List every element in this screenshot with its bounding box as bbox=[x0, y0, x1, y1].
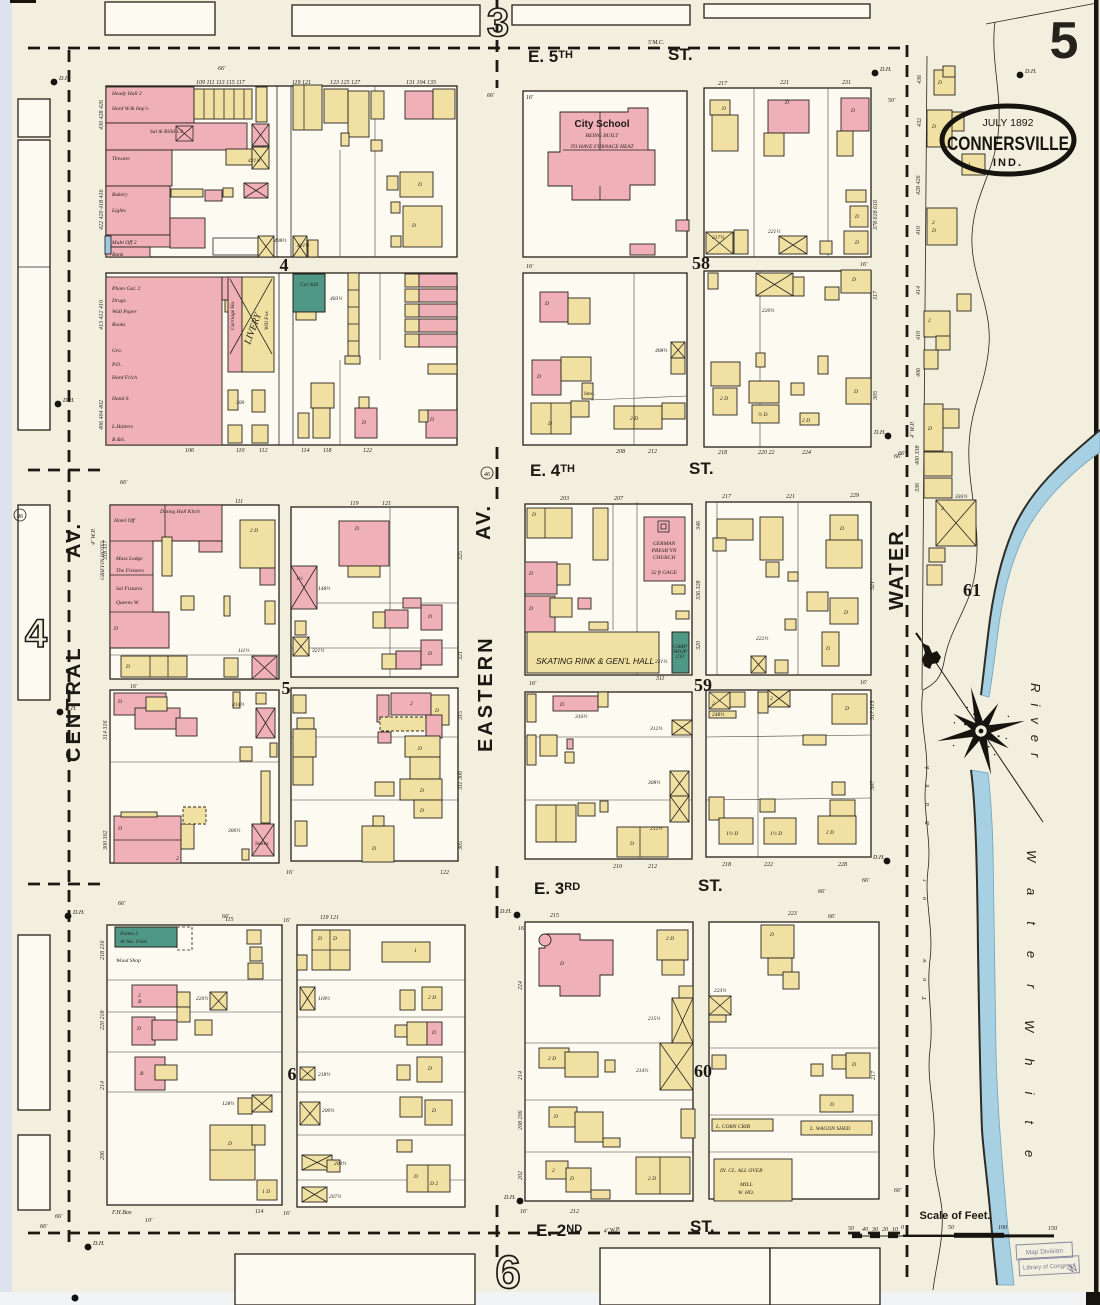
svg-text:311 309: 311 309 bbox=[458, 771, 464, 791]
svg-text:321: 321 bbox=[458, 651, 464, 661]
svg-text:Smo.: Smo. bbox=[584, 391, 595, 397]
svg-text:430 428 426: 430 428 426 bbox=[98, 100, 105, 130]
svg-text:150: 150 bbox=[1048, 1226, 1057, 1232]
svg-text:208 206: 208 206 bbox=[518, 1111, 524, 1131]
svg-text:D.H.: D.H. bbox=[503, 1195, 516, 1201]
svg-text:D: D bbox=[850, 108, 855, 114]
svg-text:ST.: ST. bbox=[698, 876, 723, 895]
svg-text:421½: 421½ bbox=[297, 242, 309, 249]
svg-text:2 D: 2 D bbox=[802, 418, 810, 424]
svg-text:Paints 2: Paints 2 bbox=[119, 931, 138, 937]
svg-text:312½: 312½ bbox=[649, 725, 662, 732]
svg-text:2: 2 bbox=[932, 220, 935, 226]
svg-text:217: 217 bbox=[871, 1070, 877, 1080]
svg-text:66′: 66′ bbox=[818, 889, 826, 895]
svg-text:320: 320 bbox=[696, 641, 702, 651]
svg-text:3: 3 bbox=[487, 1, 509, 45]
svg-text:207½: 207½ bbox=[329, 1193, 341, 1200]
svg-text:16′: 16′ bbox=[283, 1211, 291, 1217]
svg-text:ST.: ST. bbox=[690, 1217, 715, 1236]
svg-text:D: D bbox=[361, 420, 366, 426]
svg-text:4′ʿW.P.: 4′ʿW.P. bbox=[909, 421, 916, 438]
svg-text:Hard W.& Impʼs: Hard W.& Impʼs bbox=[111, 106, 148, 112]
svg-text:CHURCH: CHURCH bbox=[653, 555, 677, 561]
svg-text:207: 207 bbox=[614, 496, 624, 502]
svg-text:406: 406 bbox=[915, 368, 922, 377]
svg-text:Will Fox: Will Fox bbox=[264, 311, 270, 330]
svg-text:Scale of Feet.: Scale of Feet. bbox=[920, 1210, 991, 1222]
svg-text:D: D bbox=[317, 936, 322, 942]
svg-text:Heady Hall 2: Heady Hall 2 bbox=[111, 91, 142, 97]
svg-text:222½: 222½ bbox=[756, 635, 768, 642]
svg-text:6: 6 bbox=[495, 1246, 521, 1298]
svg-text:The Fixtures: The Fixtures bbox=[116, 568, 144, 574]
svg-text:D: D bbox=[411, 223, 416, 229]
svg-text:D: D bbox=[354, 526, 359, 532]
svg-text:EASTERN: EASTERN bbox=[475, 635, 497, 752]
svg-text:Hotel Off: Hotel Off bbox=[113, 517, 136, 524]
svg-text:114: 114 bbox=[301, 447, 310, 454]
svg-text:50′: 50′ bbox=[888, 98, 896, 104]
svg-text:PRESBʼYN: PRESBʼYN bbox=[651, 548, 677, 554]
svg-text:D: D bbox=[117, 826, 122, 832]
svg-text:325: 325 bbox=[458, 551, 464, 561]
svg-text:CO: CO bbox=[676, 654, 684, 660]
svg-text:122: 122 bbox=[440, 870, 449, 876]
svg-text:314½: 314½ bbox=[231, 701, 244, 708]
svg-text:Mass Lodge: Mass Lodge bbox=[115, 556, 143, 562]
svg-text:305: 305 bbox=[873, 391, 879, 401]
svg-text:422 420 418 416: 422 420 418 416 bbox=[98, 190, 105, 231]
svg-text:16′: 16′ bbox=[526, 264, 534, 270]
svg-text:111: 111 bbox=[235, 499, 243, 505]
svg-text:308½: 308½ bbox=[647, 779, 660, 786]
svg-text:220½: 220½ bbox=[196, 995, 208, 1002]
svg-text:317: 317 bbox=[873, 290, 879, 301]
svg-text:D: D bbox=[227, 1141, 232, 1147]
svg-text:200½: 200½ bbox=[322, 1107, 334, 1114]
svg-text:D: D bbox=[419, 808, 424, 814]
svg-text:D: D bbox=[547, 421, 552, 427]
svg-text:Wall Paper: Wall Paper bbox=[112, 309, 138, 315]
svg-text:D: D bbox=[528, 571, 533, 577]
svg-text:IN. CL. ALL OVER: IN. CL. ALL OVER bbox=[719, 1168, 763, 1174]
svg-text:D: D bbox=[629, 841, 634, 847]
svg-text:214: 214 bbox=[99, 1081, 106, 1090]
svg-text:Wood Shop: Wood Shop bbox=[116, 958, 141, 964]
svg-text:0: 0 bbox=[901, 1225, 904, 1231]
svg-text:D: D bbox=[559, 702, 564, 708]
svg-text:248½: 248½ bbox=[712, 711, 724, 718]
svg-text:W. HO.: W. HO. bbox=[738, 1190, 754, 1196]
svg-text:CENTRAL: CENTRAL bbox=[63, 645, 85, 762]
svg-text:112: 112 bbox=[259, 448, 268, 454]
svg-text:2 D: 2 D bbox=[666, 936, 674, 942]
svg-text:403½: 403½ bbox=[330, 295, 342, 302]
svg-text:10′: 10′ bbox=[145, 1218, 153, 1224]
svg-text:D: D bbox=[544, 301, 549, 307]
svg-text:4: 4 bbox=[280, 255, 289, 275]
svg-text:1 D: 1 D bbox=[262, 1189, 270, 1195]
svg-text:410: 410 bbox=[915, 331, 922, 340]
svg-text:D: D bbox=[721, 106, 726, 112]
svg-text:1½: 1½ bbox=[296, 575, 303, 582]
svg-text:2 D: 2 D bbox=[250, 528, 258, 534]
svg-text:300½: 300½ bbox=[227, 827, 240, 834]
svg-text:60: 60 bbox=[694, 1061, 712, 1081]
svg-text:123 125 127: 123 125 127 bbox=[330, 80, 361, 86]
svg-text:218: 218 bbox=[718, 450, 727, 456]
svg-text:318 317: 318 317 bbox=[103, 540, 109, 562]
svg-text:111½: 111½ bbox=[238, 647, 250, 654]
svg-text:White: White bbox=[1022, 1020, 1037, 1183]
svg-text:Bank: Bank bbox=[112, 252, 124, 258]
svg-text:D: D bbox=[117, 699, 122, 705]
svg-text:AV.: AV. bbox=[63, 522, 85, 558]
svg-text:212: 212 bbox=[570, 1209, 579, 1215]
svg-text:16′: 16′ bbox=[283, 918, 291, 924]
svg-text:16′: 16′ bbox=[860, 680, 868, 686]
svg-text:218: 218 bbox=[722, 862, 731, 868]
svg-text:Dining Hall Kitch: Dining Hall Kitch bbox=[159, 509, 200, 515]
svg-text:D: D bbox=[528, 606, 533, 612]
svg-text:408½: 408½ bbox=[274, 237, 286, 244]
svg-text:118: 118 bbox=[323, 448, 332, 454]
svg-text:58: 58 bbox=[692, 253, 710, 273]
svg-text:IND.: IND. bbox=[993, 157, 1023, 169]
svg-text:66′: 66′ bbox=[898, 451, 906, 457]
svg-text:D: D bbox=[829, 1102, 834, 1108]
svg-text:109 111 113 115 117: 109 111 113 115 117 bbox=[196, 80, 246, 86]
svg-text:336 328: 336 328 bbox=[696, 581, 702, 602]
svg-text:D: D bbox=[553, 1114, 558, 1120]
svg-text:221: 221 bbox=[786, 494, 795, 500]
svg-text:406 404 402: 406 404 402 bbox=[98, 400, 105, 430]
svg-text:6: 6 bbox=[288, 1064, 297, 1084]
svg-text:D.H.: D.H. bbox=[72, 910, 85, 916]
svg-text:Sal Fixtures: Sal Fixtures bbox=[116, 586, 143, 592]
svg-text:Multi Off 2: Multi Off 2 bbox=[111, 239, 137, 246]
svg-text:119: 119 bbox=[350, 501, 359, 507]
svg-text:217: 217 bbox=[722, 494, 732, 500]
svg-text:D: D bbox=[136, 1026, 141, 1032]
svg-text:316½: 316½ bbox=[574, 713, 587, 720]
svg-text:32 ft GAGE: 32 ft GAGE bbox=[650, 569, 678, 576]
svg-text:D: D bbox=[427, 651, 432, 657]
svg-text:315: 315 bbox=[458, 711, 464, 721]
svg-text:66′: 66′ bbox=[55, 1214, 63, 1220]
svg-text:2 D: 2 D bbox=[548, 1056, 556, 1062]
svg-text:D: D bbox=[931, 228, 936, 234]
svg-text:o r: o r bbox=[922, 872, 928, 900]
svg-text:378 618 616: 378 618 616 bbox=[873, 200, 879, 231]
svg-text:212: 212 bbox=[648, 864, 657, 870]
svg-text:D: D bbox=[417, 182, 422, 188]
svg-text:2: 2 bbox=[770, 696, 773, 702]
svg-text:Sal & Billdʼs 2: Sal & Billdʼs 2 bbox=[150, 129, 183, 135]
svg-text:D: D bbox=[937, 80, 942, 86]
svg-text:1½ D: 1½ D bbox=[770, 830, 782, 837]
svg-text:D.H.: D.H. bbox=[1024, 69, 1037, 75]
svg-text:119 121: 119 121 bbox=[292, 80, 311, 86]
svg-text:Carriage Ho.: Carriage Ho. bbox=[230, 300, 236, 330]
svg-text:4: 4 bbox=[25, 612, 48, 656]
svg-text:L. WAGON SHED: L. WAGON SHED bbox=[809, 1126, 850, 1132]
svg-text:203½: 203½ bbox=[334, 1160, 346, 1167]
svg-text:50: 50 bbox=[848, 1226, 854, 1232]
svg-text:224: 224 bbox=[517, 981, 524, 990]
svg-text:16′: 16′ bbox=[518, 926, 526, 932]
svg-text:D.H.: D.H. bbox=[499, 909, 512, 915]
svg-text:4′ʿW.P.: 4′ʿW.P. bbox=[90, 528, 97, 545]
svg-text:336½: 336½ bbox=[954, 493, 967, 500]
svg-text:D: D bbox=[125, 664, 130, 670]
svg-text:D: D bbox=[825, 646, 830, 652]
svg-text:D.H.: D.H. bbox=[873, 430, 886, 436]
svg-text:215½: 215½ bbox=[648, 1015, 660, 1022]
svg-text:122: 122 bbox=[363, 448, 372, 454]
svg-text:WATER: WATER bbox=[886, 529, 908, 610]
svg-text:D: D bbox=[419, 788, 424, 794]
svg-text:D: D bbox=[113, 626, 118, 632]
svg-text:346: 346 bbox=[695, 521, 702, 531]
svg-text:D: D bbox=[417, 746, 422, 752]
svg-text:D: D bbox=[844, 706, 849, 712]
svg-text:Cal Still: Cal Still bbox=[300, 282, 319, 288]
svg-text:1½ D: 1½ D bbox=[726, 830, 738, 837]
svg-text:2: 2 bbox=[712, 701, 715, 707]
svg-text:D: D bbox=[843, 610, 848, 616]
svg-text:224: 224 bbox=[802, 449, 811, 456]
svg-text:Water: Water bbox=[1024, 850, 1039, 1014]
svg-text:D: D bbox=[853, 389, 858, 395]
svg-text:408½: 408½ bbox=[655, 347, 667, 354]
svg-text:2: 2 bbox=[176, 856, 179, 862]
svg-text:228: 228 bbox=[838, 862, 847, 868]
svg-text:D: D bbox=[427, 614, 432, 620]
svg-text:Stores: Stores bbox=[255, 841, 269, 847]
svg-text:BEING BUILT: BEING BUILT bbox=[586, 133, 620, 139]
svg-text:215: 215 bbox=[550, 913, 559, 919]
svg-text:City School: City School bbox=[574, 119, 629, 130]
svg-text:D.H.: D.H. bbox=[64, 706, 77, 712]
svg-text:D: D bbox=[854, 240, 859, 246]
svg-text:229: 229 bbox=[850, 493, 859, 499]
svg-text:D: D bbox=[569, 1176, 574, 1182]
svg-text:222: 222 bbox=[764, 862, 773, 868]
svg-text:300 302: 300 302 bbox=[103, 831, 109, 852]
svg-text:D: D bbox=[851, 1062, 856, 1068]
svg-text:305: 305 bbox=[458, 841, 464, 851]
svg-text:D: D bbox=[536, 374, 541, 380]
svg-text:66′: 66′ bbox=[218, 66, 226, 72]
svg-text:D.H.: D.H. bbox=[58, 76, 71, 82]
svg-text:321: 321 bbox=[870, 581, 876, 591]
svg-text:Books: Books bbox=[112, 322, 125, 328]
svg-text:223: 223 bbox=[788, 911, 797, 917]
svg-text:220 218: 220 218 bbox=[100, 1011, 106, 1031]
svg-text:61: 61 bbox=[963, 580, 981, 600]
svg-text:16′: 16′ bbox=[529, 681, 537, 687]
svg-text:314 316: 314 316 bbox=[102, 721, 109, 742]
svg-text:1: 1 bbox=[414, 948, 417, 954]
svg-text:Drugs: Drugs bbox=[111, 298, 126, 304]
svg-text:428 426: 428 426 bbox=[915, 176, 922, 196]
svg-text:128½: 128½ bbox=[222, 1100, 234, 1107]
svg-text:311: 311 bbox=[655, 676, 665, 682]
svg-text:66′: 66′ bbox=[222, 914, 230, 920]
svg-text:2 D: 2 D bbox=[428, 995, 436, 1001]
svg-text:D: D bbox=[927, 426, 932, 432]
svg-text:D: D bbox=[431, 1108, 436, 1114]
svg-text:16′: 16′ bbox=[860, 262, 868, 268]
svg-text:2: 2 bbox=[552, 1168, 555, 1174]
svg-text:202: 202 bbox=[518, 1171, 524, 1180]
svg-text:66′: 66′ bbox=[487, 93, 495, 99]
svg-text:TO HAVE FURNACE HEAT: TO HAVE FURNACE HEAT bbox=[570, 144, 634, 150]
svg-text:217: 217 bbox=[718, 81, 728, 87]
svg-text:66′: 66′ bbox=[40, 1224, 48, 1230]
svg-text:Queens W.: Queens W. bbox=[116, 600, 139, 606]
svg-text:436: 436 bbox=[916, 75, 923, 84]
svg-text:218 216: 218 216 bbox=[100, 941, 106, 961]
svg-text:D.H.: D.H. bbox=[92, 1241, 105, 1247]
svg-text:D: D bbox=[784, 100, 789, 106]
svg-text:66′: 66′ bbox=[828, 914, 836, 920]
svg-text:GERMAN: GERMAN bbox=[653, 541, 676, 547]
svg-text:CONNERSVILLE: CONNERSVILLE bbox=[947, 134, 1069, 155]
svg-text:119 121: 119 121 bbox=[320, 915, 339, 921]
svg-text:B.&S.: B.&S. bbox=[112, 437, 125, 443]
svg-text:218½: 218½ bbox=[318, 1071, 330, 1078]
svg-text:16′: 16′ bbox=[286, 870, 294, 876]
svg-text:2 D: 2 D bbox=[826, 830, 834, 836]
svg-text:410: 410 bbox=[915, 226, 922, 235]
svg-text:221½: 221½ bbox=[768, 228, 780, 235]
svg-text:AV.: AV. bbox=[473, 504, 495, 540]
svg-text:50: 50 bbox=[948, 1225, 954, 1231]
svg-text:2: 2 bbox=[410, 701, 413, 707]
svg-text:121: 121 bbox=[382, 501, 391, 507]
svg-text:307: 307 bbox=[870, 780, 876, 791]
svg-text:66′: 66′ bbox=[120, 480, 128, 486]
svg-text:Tinware: Tinware bbox=[112, 156, 130, 162]
svg-text:214: 214 bbox=[517, 1071, 524, 1080]
svg-text:D.H.: D.H. bbox=[62, 398, 75, 404]
svg-text:Bakery: Bakery bbox=[112, 192, 128, 198]
svg-text:110: 110 bbox=[236, 448, 245, 454]
svg-text:D: D bbox=[931, 124, 936, 130]
svg-text:2 D: 2 D bbox=[630, 416, 638, 422]
svg-text:D: D bbox=[559, 961, 564, 967]
svg-text:30: 30 bbox=[871, 1227, 878, 1233]
svg-text:210: 210 bbox=[613, 864, 622, 870]
svg-text:317 315: 317 315 bbox=[870, 701, 876, 722]
svg-text:D: D bbox=[854, 214, 859, 220]
svg-text:214½: 214½ bbox=[636, 1067, 648, 1074]
svg-text:D: D bbox=[839, 526, 844, 532]
svg-text:148½: 148½ bbox=[318, 585, 330, 592]
svg-text:JULY 1892: JULY 1892 bbox=[983, 117, 1034, 129]
svg-text:100: 100 bbox=[998, 1225, 1007, 1231]
svg-text:2: 2 bbox=[941, 506, 944, 512]
svg-text:D: D bbox=[371, 846, 376, 852]
svg-text:D: D bbox=[413, 1174, 418, 1180]
svg-text:T o w: T o w bbox=[922, 952, 928, 1000]
svg-text:66′: 66′ bbox=[894, 1188, 902, 1194]
svg-text:223½: 223½ bbox=[714, 987, 726, 994]
svg-text:46: 46 bbox=[484, 471, 490, 478]
svg-text:321½: 321½ bbox=[311, 647, 324, 654]
svg-text:66′: 66′ bbox=[118, 901, 126, 907]
svg-text:D: D bbox=[531, 512, 536, 518]
svg-text:D: D bbox=[427, 1066, 432, 1072]
svg-text:300: 300 bbox=[235, 400, 245, 406]
svg-text:5: 5 bbox=[1050, 12, 1079, 70]
svg-text:ST.: ST. bbox=[689, 459, 714, 478]
svg-text:ST.: ST. bbox=[668, 45, 693, 64]
svg-text:421½: 421½ bbox=[248, 157, 260, 164]
svg-text:231: 231 bbox=[842, 80, 851, 86]
svg-text:16′: 16′ bbox=[526, 95, 534, 101]
svg-text:336: 336 bbox=[915, 483, 921, 493]
svg-text:SKATING RINK & GENʼL HALL: SKATING RINK & GENʼL HALL bbox=[536, 656, 655, 666]
svg-text:131 104 135: 131 104 135 bbox=[406, 79, 436, 86]
svg-text:D.H.: D.H. bbox=[872, 855, 885, 861]
svg-text:2 D: 2 D bbox=[648, 1176, 656, 1182]
svg-text:16′: 16′ bbox=[130, 684, 138, 690]
svg-text:432: 432 bbox=[916, 118, 923, 127]
svg-text:D: D bbox=[851, 277, 856, 283]
svg-text:F.H.Box: F.H.Box bbox=[111, 1210, 132, 1216]
svg-text:P.O.: P.O. bbox=[111, 362, 121, 368]
svg-text:212½: 212½ bbox=[650, 825, 662, 832]
svg-text:D.H.: D.H. bbox=[879, 67, 892, 73]
svg-text:220½: 220½ bbox=[762, 307, 774, 314]
svg-text:10: 10 bbox=[892, 1227, 898, 1233]
svg-text:D: D bbox=[769, 932, 774, 938]
svg-text:½ D: ½ D bbox=[758, 411, 768, 418]
svg-text:40: 40 bbox=[862, 1226, 868, 1233]
svg-text:D: D bbox=[431, 1030, 436, 1036]
svg-text:MILL: MILL bbox=[739, 1182, 753, 1188]
svg-text:114: 114 bbox=[255, 1208, 264, 1215]
svg-text:Lights: Lights bbox=[111, 208, 126, 214]
svg-text:118½: 118½ bbox=[318, 995, 330, 1002]
svg-text:221½: 221½ bbox=[655, 658, 667, 665]
svg-text:106: 106 bbox=[185, 448, 194, 454]
svg-text:5′M.C.: 5′M.C. bbox=[648, 40, 664, 46]
svg-text:66′: 66′ bbox=[862, 878, 870, 884]
svg-text:400 338: 400 338 bbox=[914, 446, 921, 466]
svg-text:At Sto. Fixts: At Sto. Fixts bbox=[119, 939, 147, 945]
svg-text:217½: 217½ bbox=[712, 234, 724, 241]
svg-text:D: D bbox=[429, 417, 434, 423]
svg-text:221: 221 bbox=[780, 80, 789, 86]
svg-text:River: River bbox=[1028, 683, 1043, 768]
svg-text:D: D bbox=[434, 708, 439, 714]
svg-text:Hand S.: Hand S. bbox=[111, 396, 130, 402]
svg-text:208: 208 bbox=[616, 449, 625, 455]
svg-text:414: 414 bbox=[915, 286, 922, 295]
svg-text:16′: 16′ bbox=[520, 1209, 528, 1215]
svg-text:D 2: D 2 bbox=[429, 1181, 438, 1187]
svg-text:D: D bbox=[332, 936, 337, 942]
svg-text:220 22: 220 22 bbox=[758, 450, 775, 456]
svg-text:212: 212 bbox=[648, 449, 657, 455]
svg-text:Photo Gal. 2: Photo Gal. 2 bbox=[111, 286, 141, 292]
svg-text:20: 20 bbox=[882, 1227, 888, 1233]
